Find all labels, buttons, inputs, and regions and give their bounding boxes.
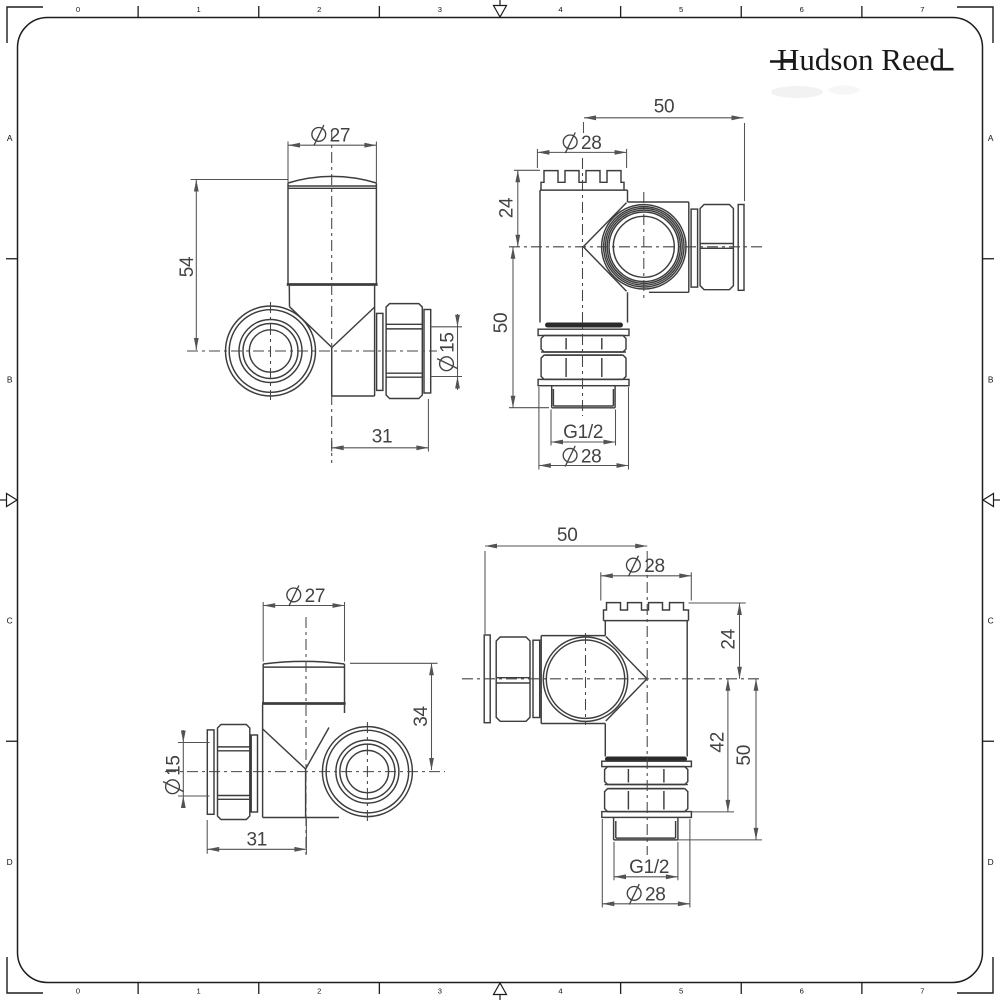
svg-text:15: 15: [438, 332, 459, 353]
svg-text:2: 2: [317, 986, 321, 995]
svg-text:54: 54: [177, 256, 198, 277]
svg-text:5: 5: [679, 5, 683, 14]
svg-text:34: 34: [411, 706, 432, 727]
svg-text:B: B: [7, 374, 13, 384]
svg-text:A: A: [7, 133, 13, 143]
svg-text:50: 50: [491, 313, 512, 334]
svg-text:0: 0: [76, 5, 80, 14]
svg-text:0: 0: [76, 986, 80, 995]
svg-text:50: 50: [557, 525, 578, 546]
svg-text:3: 3: [438, 5, 442, 14]
svg-text:1: 1: [196, 986, 200, 995]
svg-text:50: 50: [734, 745, 755, 766]
svg-text:4: 4: [558, 5, 562, 14]
svg-text:A: A: [988, 133, 994, 143]
svg-text:4: 4: [558, 986, 562, 995]
svg-text:7: 7: [920, 5, 924, 14]
svg-text:Hudson Reed: Hudson Reed: [777, 42, 946, 77]
svg-text:3: 3: [438, 986, 442, 995]
svg-text:28: 28: [581, 446, 602, 467]
svg-text:50: 50: [654, 96, 675, 117]
svg-text:27: 27: [305, 586, 326, 607]
svg-text:15: 15: [164, 755, 185, 776]
svg-text:D: D: [988, 857, 994, 867]
svg-text:6: 6: [800, 5, 804, 14]
svg-text:42: 42: [708, 732, 729, 753]
svg-text:D: D: [7, 857, 13, 867]
svg-text:28: 28: [645, 884, 666, 905]
svg-text:31: 31: [247, 829, 268, 850]
svg-text:2: 2: [317, 5, 321, 14]
svg-text:G1/2: G1/2: [563, 422, 603, 443]
svg-text:28: 28: [581, 133, 602, 154]
svg-text:1: 1: [196, 5, 200, 14]
svg-text:G1/2: G1/2: [629, 857, 669, 878]
svg-text:6: 6: [800, 986, 804, 995]
svg-text:7: 7: [920, 986, 924, 995]
svg-text:C: C: [988, 616, 994, 626]
svg-text:B: B: [988, 374, 994, 384]
svg-text:24: 24: [497, 197, 518, 218]
svg-text:5: 5: [679, 986, 683, 995]
svg-text:24: 24: [718, 628, 739, 649]
svg-text:31: 31: [372, 426, 393, 447]
svg-text:C: C: [7, 616, 13, 626]
svg-text:27: 27: [330, 125, 351, 146]
